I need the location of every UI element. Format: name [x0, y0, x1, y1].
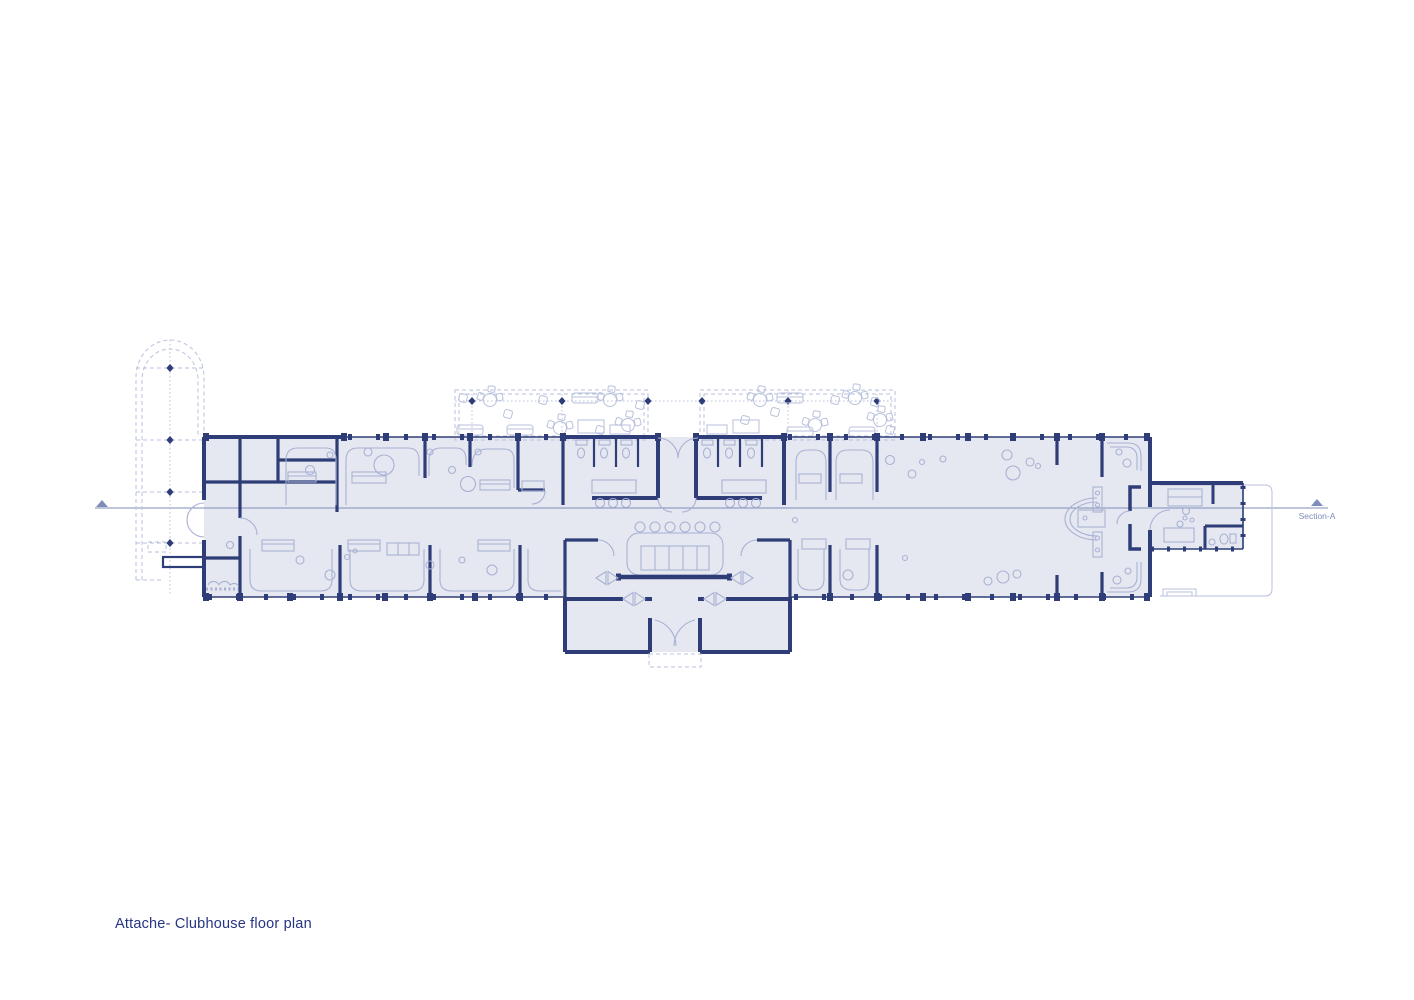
- grid-markers-terrace: [468, 397, 880, 405]
- section-marker-left-icon: [96, 500, 108, 507]
- west-stub: [163, 557, 204, 567]
- terrace-outline: [455, 390, 895, 440]
- grid-markers-canopy: [166, 364, 173, 547]
- drawing-title: Attache- Clubhouse floor plan: [115, 916, 312, 932]
- floor-plan-svg: Section-A: [0, 0, 1414, 1000]
- entrance-mat: [649, 654, 701, 667]
- section-label: Section-A: [1299, 511, 1336, 521]
- terrace-furniture: [457, 384, 895, 437]
- entry-canopy: [136, 340, 204, 596]
- drawing-sheet: Section-A: [0, 0, 1414, 1000]
- section-marker-right-icon: [1311, 499, 1323, 506]
